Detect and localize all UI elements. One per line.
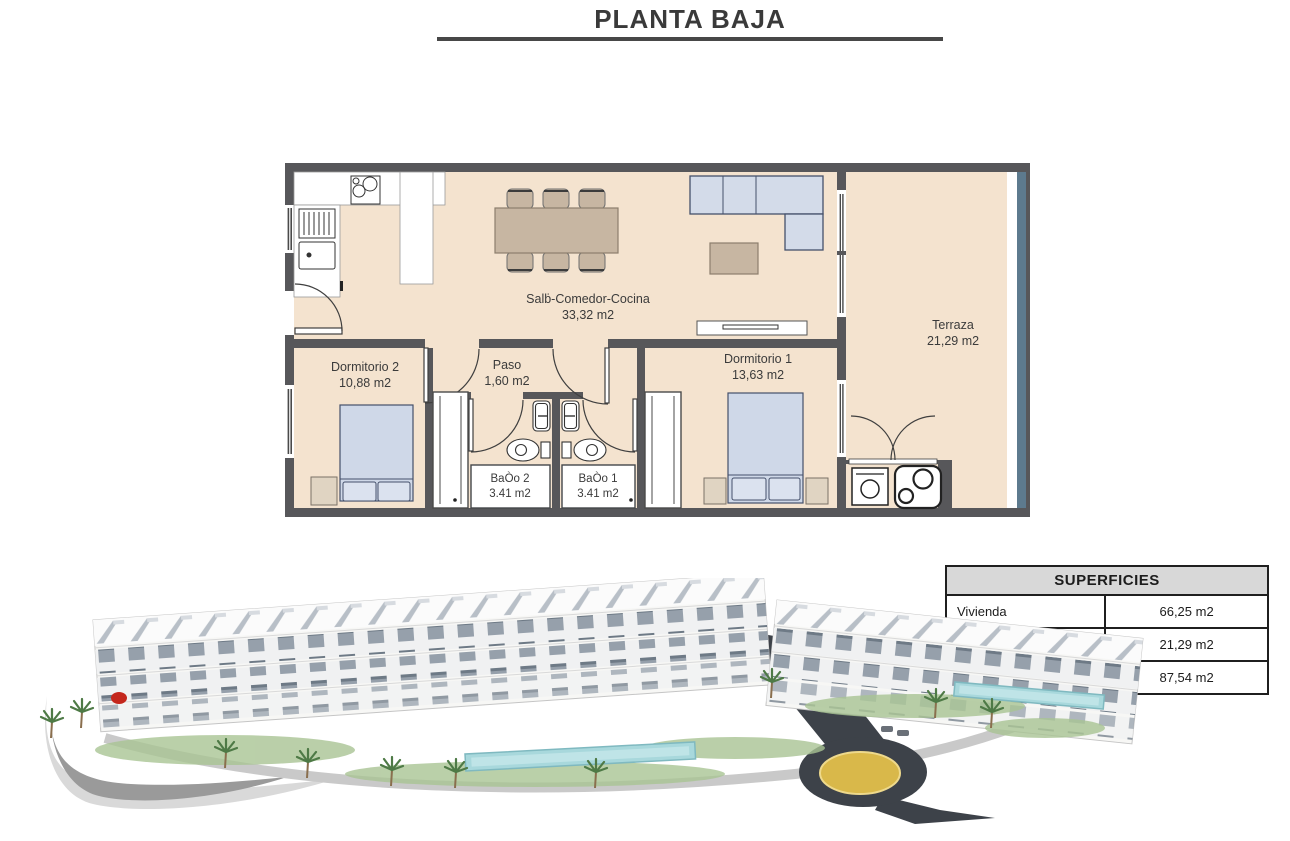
shower-tray — [562, 465, 635, 508]
svg-text:1,60 m2: 1,60 m2 — [484, 374, 529, 388]
room-label-salon: Salḃ-Comedor-Cocina — [526, 292, 650, 306]
parked-cars — [881, 726, 909, 736]
location-marker — [111, 692, 127, 704]
dining-set — [495, 189, 618, 272]
floor-plan: Salḃ-Comedor-Cocina 33,32 m2 Terraza 21,… — [285, 163, 1030, 518]
page-title-block: PLANTA BAJA — [437, 4, 943, 35]
building-left — [93, 578, 771, 732]
toilet-icon — [507, 439, 539, 461]
svg-text:3.41 m2: 3.41 m2 — [489, 488, 531, 500]
floor-plan-drawing: Salḃ-Comedor-Cocina 33,32 m2 Terraza 21,… — [285, 163, 1030, 518]
svg-text:13,63 m2: 13,63 m2 — [732, 368, 784, 382]
room-label-dormitorio-1: Dormitorio 1 — [724, 352, 792, 366]
development-render — [35, 578, 1255, 836]
development-render-illustration — [35, 578, 1255, 836]
toilet-icon — [574, 439, 606, 461]
utility-closet — [852, 466, 941, 508]
room-label-terraza: Terraza — [932, 318, 974, 332]
shower-tray — [471, 465, 550, 508]
coffee-table — [710, 243, 758, 274]
dining-table — [495, 208, 618, 253]
railing-gap — [1007, 172, 1017, 508]
svg-text:21,29 m2: 21,29 m2 — [927, 334, 979, 348]
roundabout-center — [820, 752, 900, 794]
room-label-bano-1: BaÒo 1 — [579, 472, 618, 485]
page-title: PLANTA BAJA — [437, 4, 943, 35]
room-label-dormitorio-2: Dormitorio 2 — [331, 360, 399, 374]
svg-text:33,32 m2: 33,32 m2 — [562, 308, 614, 322]
svg-text:10,88 m2: 10,88 m2 — [339, 376, 391, 390]
room-label-paso: Paso — [493, 358, 522, 372]
room-label-bano-2: BaÒo 2 — [491, 472, 530, 485]
title-underline — [437, 37, 943, 41]
page: { "title": "PLANTA BAJA", "floor_plan": … — [0, 0, 1290, 840]
windows-left — [285, 205, 294, 458]
svg-text:3.41 m2: 3.41 m2 — [577, 488, 619, 500]
glass-railing — [1017, 172, 1026, 508]
